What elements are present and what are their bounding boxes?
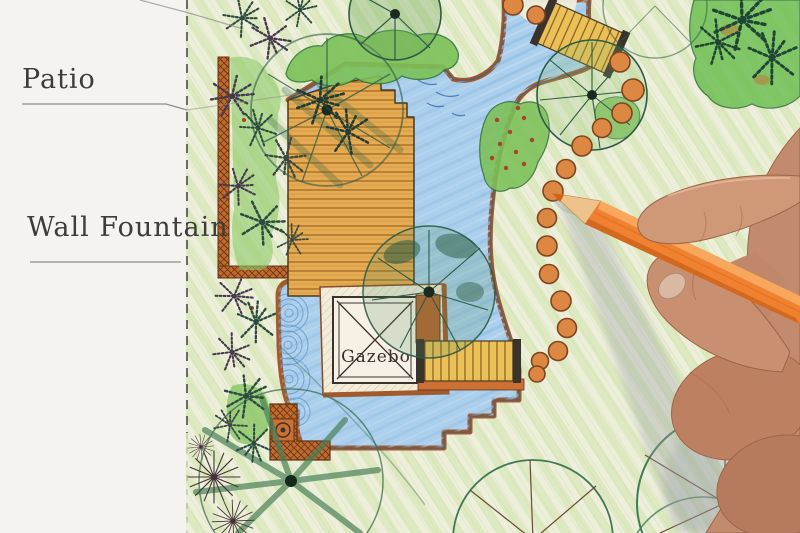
patio-label: Patio [22, 64, 96, 95]
wall-fountain-label: Wall Fountain [27, 212, 229, 243]
landscape-plan-photo: Gazebo [0, 0, 800, 533]
plan-scene: Gazebo [0, 0, 800, 533]
